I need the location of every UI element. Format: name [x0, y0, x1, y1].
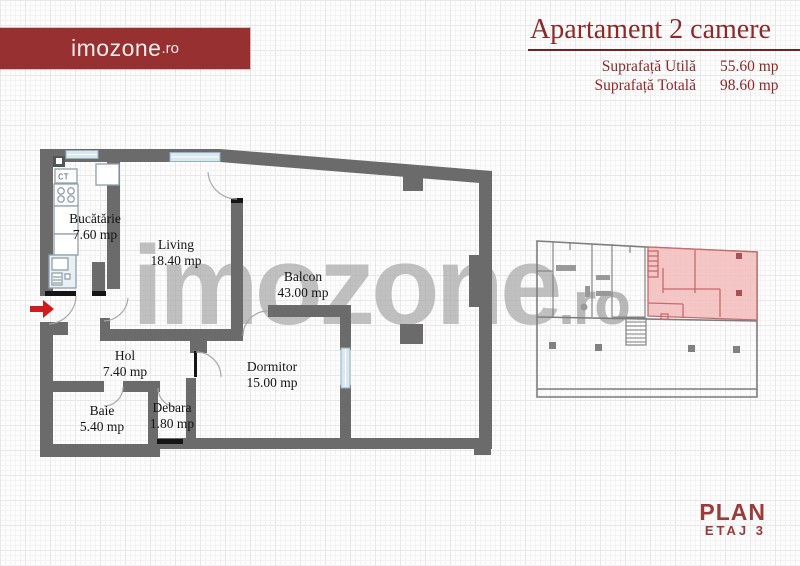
room-label-living: Living 18.40 mp — [150, 237, 201, 268]
plan-label: PLAN — [699, 501, 766, 524]
room-area: 1.80 mp — [150, 416, 194, 432]
room-name: Dormitor — [246, 359, 297, 375]
terrace-pillars — [549, 342, 740, 353]
overview-highlighted-unit — [648, 247, 757, 320]
floor-label: ETAJ 3 — [699, 524, 766, 539]
room-area: 18.40 mp — [150, 253, 201, 269]
room-area: 5.40 mp — [80, 419, 124, 435]
room-label-bucatarie: Bucătărie 7.60 mp — [69, 211, 121, 242]
room-name: Debara — [150, 400, 194, 416]
room-name: Baie — [80, 403, 124, 419]
room-label-balcon: Balcon 43.00 mp — [277, 269, 328, 300]
room-label-hol: Hol 7.40 mp — [103, 348, 147, 379]
room-label-dormitor: Dormitor 15.00 mp — [246, 359, 297, 390]
stove-icon — [54, 184, 78, 206]
room-label-debara: Debara 1.80 mp — [150, 400, 194, 431]
room-name: Living — [150, 237, 201, 253]
room-label-baie: Baie 5.40 mp — [80, 403, 124, 434]
room-name: Hol — [103, 348, 147, 364]
ct-label: CT — [58, 173, 69, 183]
page: imozone.ro Apartament 2 camere Suprafață… — [0, 0, 800, 566]
floor-plan-canvas: CT — [0, 0, 800, 566]
entrance-arrow-icon — [30, 300, 54, 318]
room-name: Balcon — [277, 269, 328, 285]
plan-footer: PLAN ETAJ 3 — [699, 501, 766, 539]
room-area: 43.00 mp — [277, 285, 328, 301]
wall-cabinet — [96, 164, 119, 185]
room-area: 15.00 mp — [246, 375, 297, 391]
room-area: 7.40 mp — [103, 364, 147, 380]
room-name: Bucătărie — [69, 211, 121, 227]
room-area: 7.60 mp — [69, 227, 121, 243]
